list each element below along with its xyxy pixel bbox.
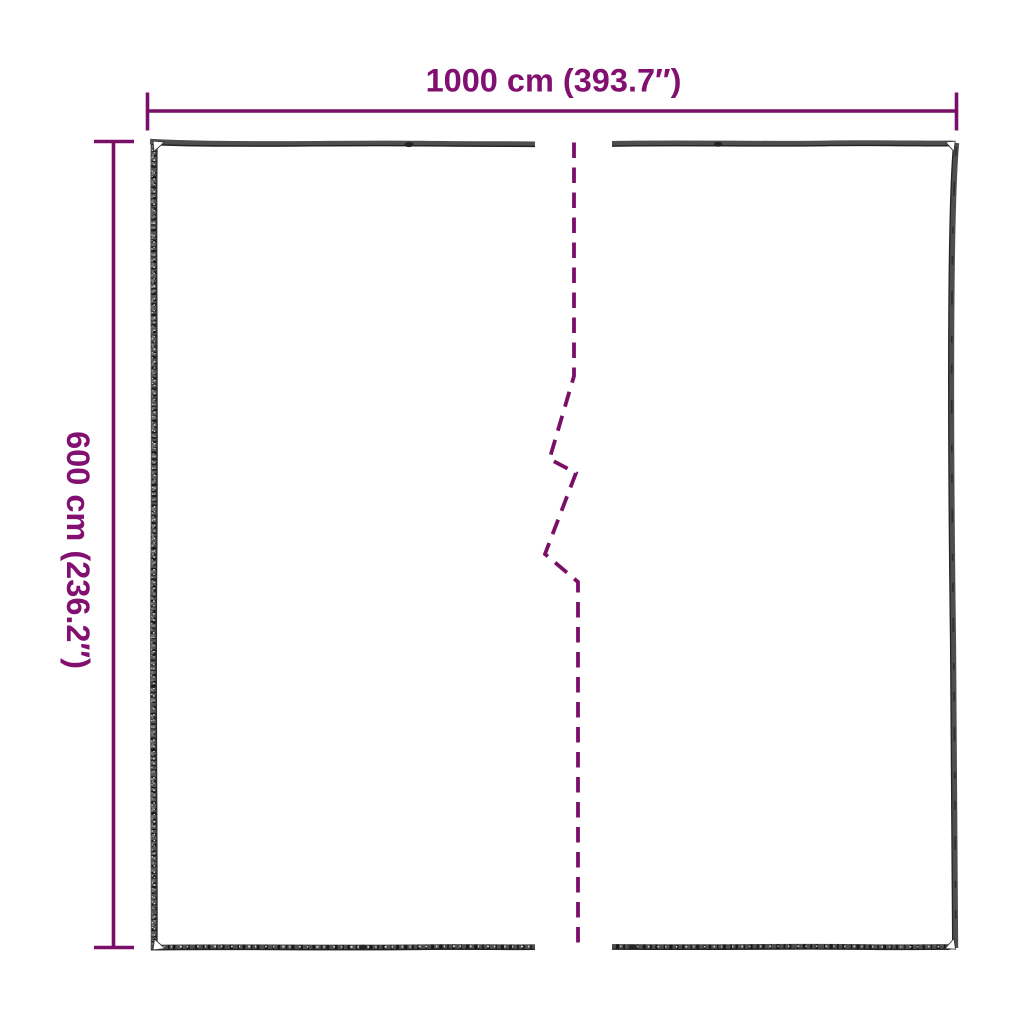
svg-text:600 cm (236.2″): 600 cm (236.2″) — [60, 431, 96, 669]
svg-text:1000 cm (393.7″): 1000 cm (393.7″) — [426, 63, 682, 99]
